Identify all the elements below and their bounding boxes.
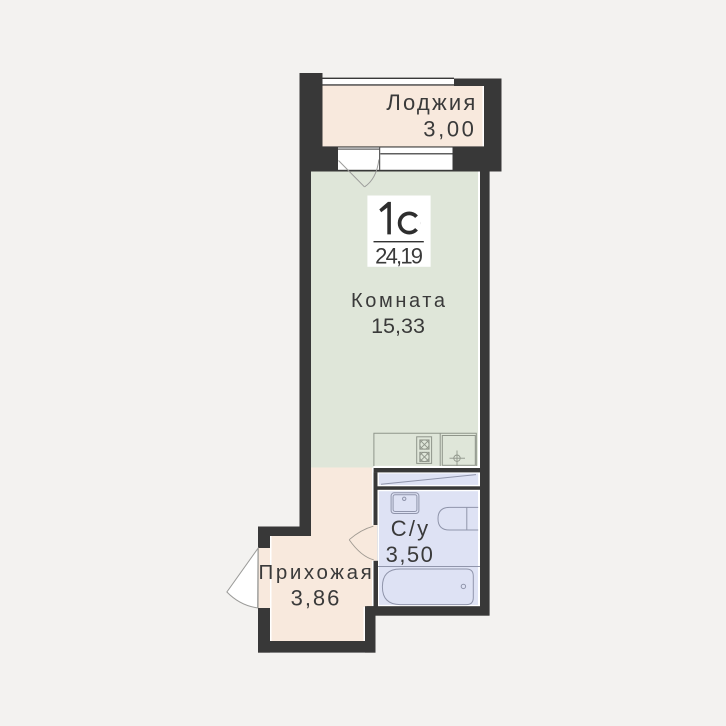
svg-text:3,86: 3,86 (291, 586, 342, 611)
svg-text:Лоджия: Лоджия (386, 90, 477, 115)
svg-text:3,00: 3,00 (423, 116, 476, 141)
svg-text:С/у: С/у (391, 516, 431, 541)
svg-text:24,19: 24,19 (375, 244, 423, 269)
svg-text:Комната: Комната (351, 290, 448, 312)
svg-text:15,33: 15,33 (371, 314, 425, 338)
svg-text:Прихожая: Прихожая (259, 561, 375, 584)
svg-text:3,50: 3,50 (386, 542, 435, 567)
